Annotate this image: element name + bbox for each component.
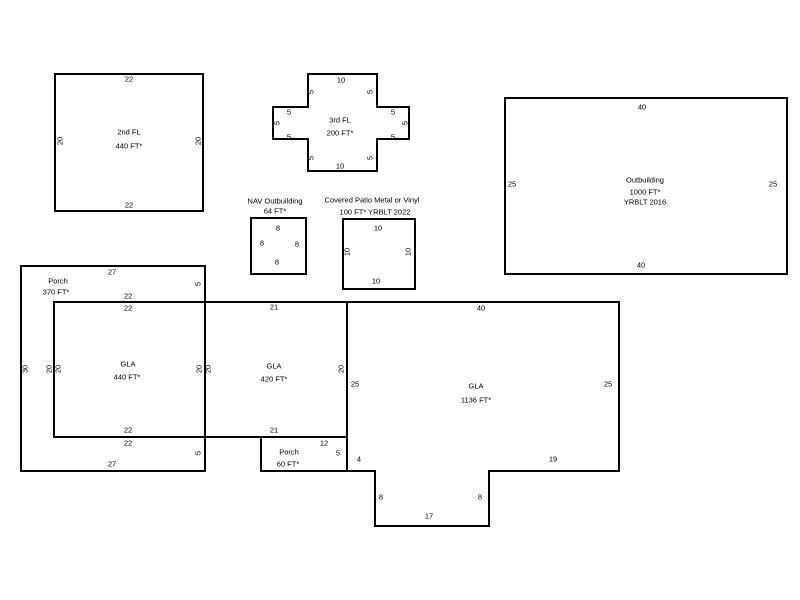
outbuilding-dim-right: 25 bbox=[769, 180, 777, 188]
porch-370-dim-bottom: 27 bbox=[108, 460, 116, 468]
gla-440-dim-right: 20 bbox=[195, 365, 203, 373]
covered-patio-title: Covered Patio Metal or Vinyl bbox=[325, 196, 420, 204]
third-floor-dim-col-tr: 5 bbox=[366, 90, 374, 94]
third-floor-dim-bottom: 10 bbox=[336, 162, 344, 170]
second-floor-title: 2nd FL bbox=[117, 128, 140, 136]
second-floor-area: 440 FT* bbox=[116, 142, 143, 150]
porch-60-title: Porch bbox=[279, 448, 299, 456]
outbuilding-title: Outbuilding bbox=[626, 176, 664, 184]
gla-420-dim-right: 20 bbox=[337, 365, 345, 373]
porch-370-dim-inner-left: 20 bbox=[45, 365, 53, 373]
second-floor-dim-bottom: 22 bbox=[125, 201, 133, 209]
porch-370-dim-inner-top: 22 bbox=[124, 292, 132, 300]
third-floor-dim-far-left: 5 bbox=[273, 121, 281, 125]
covered-patio-area-yrblt: 100 FT* YRBLT 2022 bbox=[340, 208, 411, 216]
porch-370-area: 370 FT* bbox=[43, 288, 70, 296]
gla-420-dim-bottom: 21 bbox=[270, 426, 278, 434]
covered-patio-dim-bottom: 10 bbox=[372, 277, 380, 285]
porch-370-dim-inner-bot: 22 bbox=[124, 439, 132, 447]
porch-370-dim-left: 30 bbox=[21, 365, 29, 373]
third-floor-dim-left-arm-top: 5 bbox=[287, 108, 291, 116]
outbuilding-dim-bottom: 40 bbox=[637, 261, 645, 269]
gla-440-dim-top: 22 bbox=[124, 304, 132, 312]
porch-370-dim-right-bot: 5 bbox=[194, 451, 202, 455]
gla-1136-dim-bot-left: 4 bbox=[357, 455, 361, 463]
porch-370-dim-top: 27 bbox=[108, 268, 116, 276]
third-floor-dim-col-br: 5 bbox=[366, 156, 374, 160]
outbuilding-dim-left: 25 bbox=[508, 180, 516, 188]
gla-1136-dim-right: 25 bbox=[604, 380, 612, 388]
outbuilding-dim-top: 40 bbox=[638, 103, 646, 111]
gla-420-dim-left: 20 bbox=[204, 365, 212, 373]
covered-patio-dim-top: 10 bbox=[374, 224, 382, 232]
gla-1136-dim-notch-left: 8 bbox=[379, 493, 383, 501]
nav-outbuilding-dim-top: 8 bbox=[276, 224, 280, 232]
third-floor-title: 3rd FL bbox=[329, 116, 351, 124]
gla-440-title: GLA bbox=[120, 360, 135, 368]
gla-420-dim-top: 21 bbox=[270, 303, 278, 311]
third-floor-dim-top: 10 bbox=[337, 76, 345, 84]
covered-patio-dim-right: 10 bbox=[404, 248, 412, 256]
outbuilding-yrblt: YRBLT 2016 bbox=[624, 198, 666, 206]
gla-1136-area: 1136 FT* bbox=[461, 396, 491, 404]
gla-1136-dim-notch-bot: 17 bbox=[425, 512, 433, 520]
nav-outbuilding-dim-right: 8 bbox=[295, 240, 299, 248]
outbuilding-area: 1000 FT* bbox=[630, 188, 661, 196]
gla-420-area: 420 FT* bbox=[261, 375, 288, 383]
third-floor-dim-far-right: 5 bbox=[401, 121, 409, 125]
third-floor-dim-col-tl: 5 bbox=[307, 90, 315, 94]
covered-patio-dim-left: 10 bbox=[343, 248, 351, 256]
third-floor-dim-col-bl: 5 bbox=[307, 156, 315, 160]
nav-outbuilding-area: 64 FT* bbox=[264, 207, 287, 215]
third-floor-dim-right-arm-top: 5 bbox=[391, 108, 395, 116]
second-floor-dim-top: 22 bbox=[125, 75, 133, 83]
gla-1136-dim-top: 40 bbox=[477, 304, 485, 312]
third-floor-dim-right-arm-bot: 5 bbox=[391, 133, 395, 141]
third-floor-dim-left-arm-bot: 5 bbox=[287, 133, 291, 141]
gla-1136-dim-left: 25 bbox=[351, 380, 359, 388]
gla-440-dim-bottom: 22 bbox=[124, 426, 132, 434]
third-floor-area: 200 FT* bbox=[327, 129, 354, 137]
gla-440-area: 440 FT* bbox=[114, 373, 141, 381]
gla-1136-dim-notch-right: 8 bbox=[478, 493, 482, 501]
nav-outbuilding-dim-bottom: 8 bbox=[275, 258, 279, 266]
porch-370-title: Porch bbox=[48, 277, 68, 285]
second-floor-dim-left: 20 bbox=[56, 137, 64, 145]
porch-60-dim-top: 12 bbox=[320, 439, 328, 447]
second-floor-dim-right: 20 bbox=[194, 137, 202, 145]
gla-440-dim-left: 20 bbox=[54, 365, 62, 373]
label-layer: 222220202nd FL440 FT*10103rd FL200 FT*55… bbox=[0, 0, 800, 600]
porch-370-dim-right-top: 5 bbox=[194, 282, 202, 286]
porch-60-area: 60 FT* bbox=[277, 460, 300, 468]
gla-1136-title: GLA bbox=[468, 382, 483, 390]
nav-outbuilding-dim-left: 8 bbox=[260, 239, 264, 247]
floor-plan-sketch: 222220202nd FL440 FT*10103rd FL200 FT*55… bbox=[0, 0, 800, 600]
gla-420-title: GLA bbox=[266, 362, 281, 370]
porch-60-dim-right: 5 bbox=[336, 449, 340, 457]
gla-1136-dim-bot-right: 19 bbox=[549, 455, 557, 463]
nav-outbuilding-title: NAV Outbuilding bbox=[248, 197, 303, 205]
